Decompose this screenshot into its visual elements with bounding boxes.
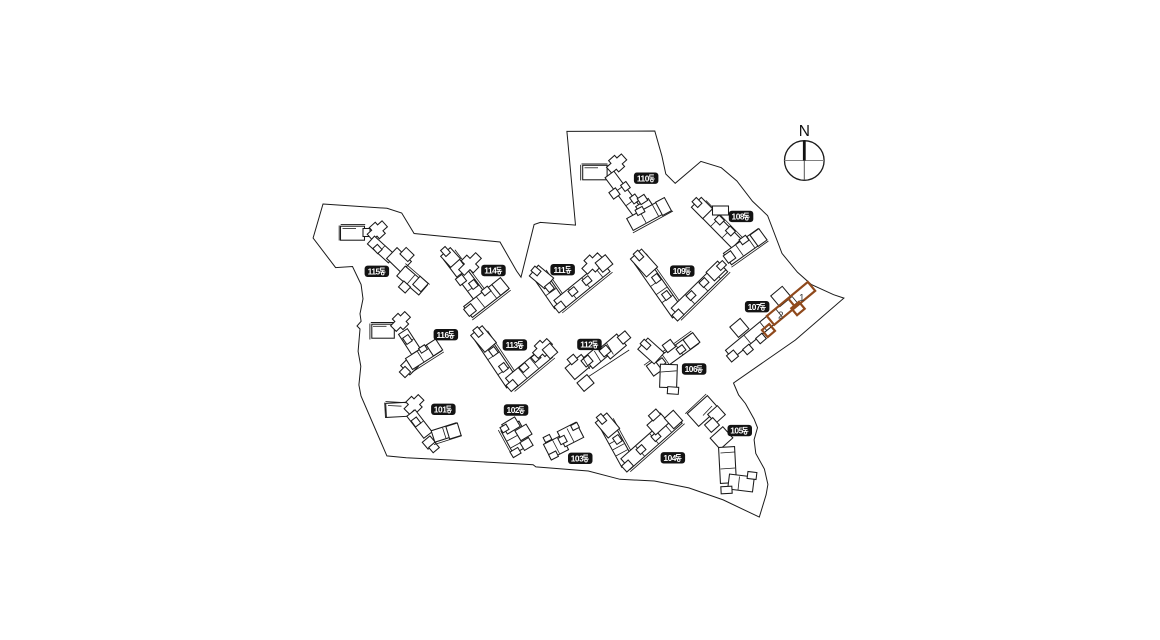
svg-text:113: 113	[506, 340, 519, 350]
svg-text:108: 108	[731, 212, 744, 222]
svg-text:N: N	[799, 123, 810, 140]
svg-text:106: 106	[685, 364, 698, 374]
svg-text:1: 1	[799, 293, 805, 304]
svg-text:102: 102	[506, 405, 519, 415]
svg-text:111: 111	[554, 265, 566, 275]
svg-text:107: 107	[748, 302, 761, 312]
svg-text:103: 103	[571, 453, 584, 463]
svg-text:2: 2	[778, 311, 784, 322]
svg-text:110: 110	[637, 173, 650, 183]
svg-text:116: 116	[437, 330, 450, 340]
svg-text:112: 112	[580, 340, 593, 350]
svg-text:101: 101	[434, 404, 447, 414]
svg-text:115: 115	[368, 266, 381, 276]
svg-text:105: 105	[730, 426, 743, 436]
svg-text:109: 109	[673, 266, 686, 276]
svg-text:114: 114	[484, 266, 497, 276]
svg-text:104: 104	[663, 453, 676, 463]
